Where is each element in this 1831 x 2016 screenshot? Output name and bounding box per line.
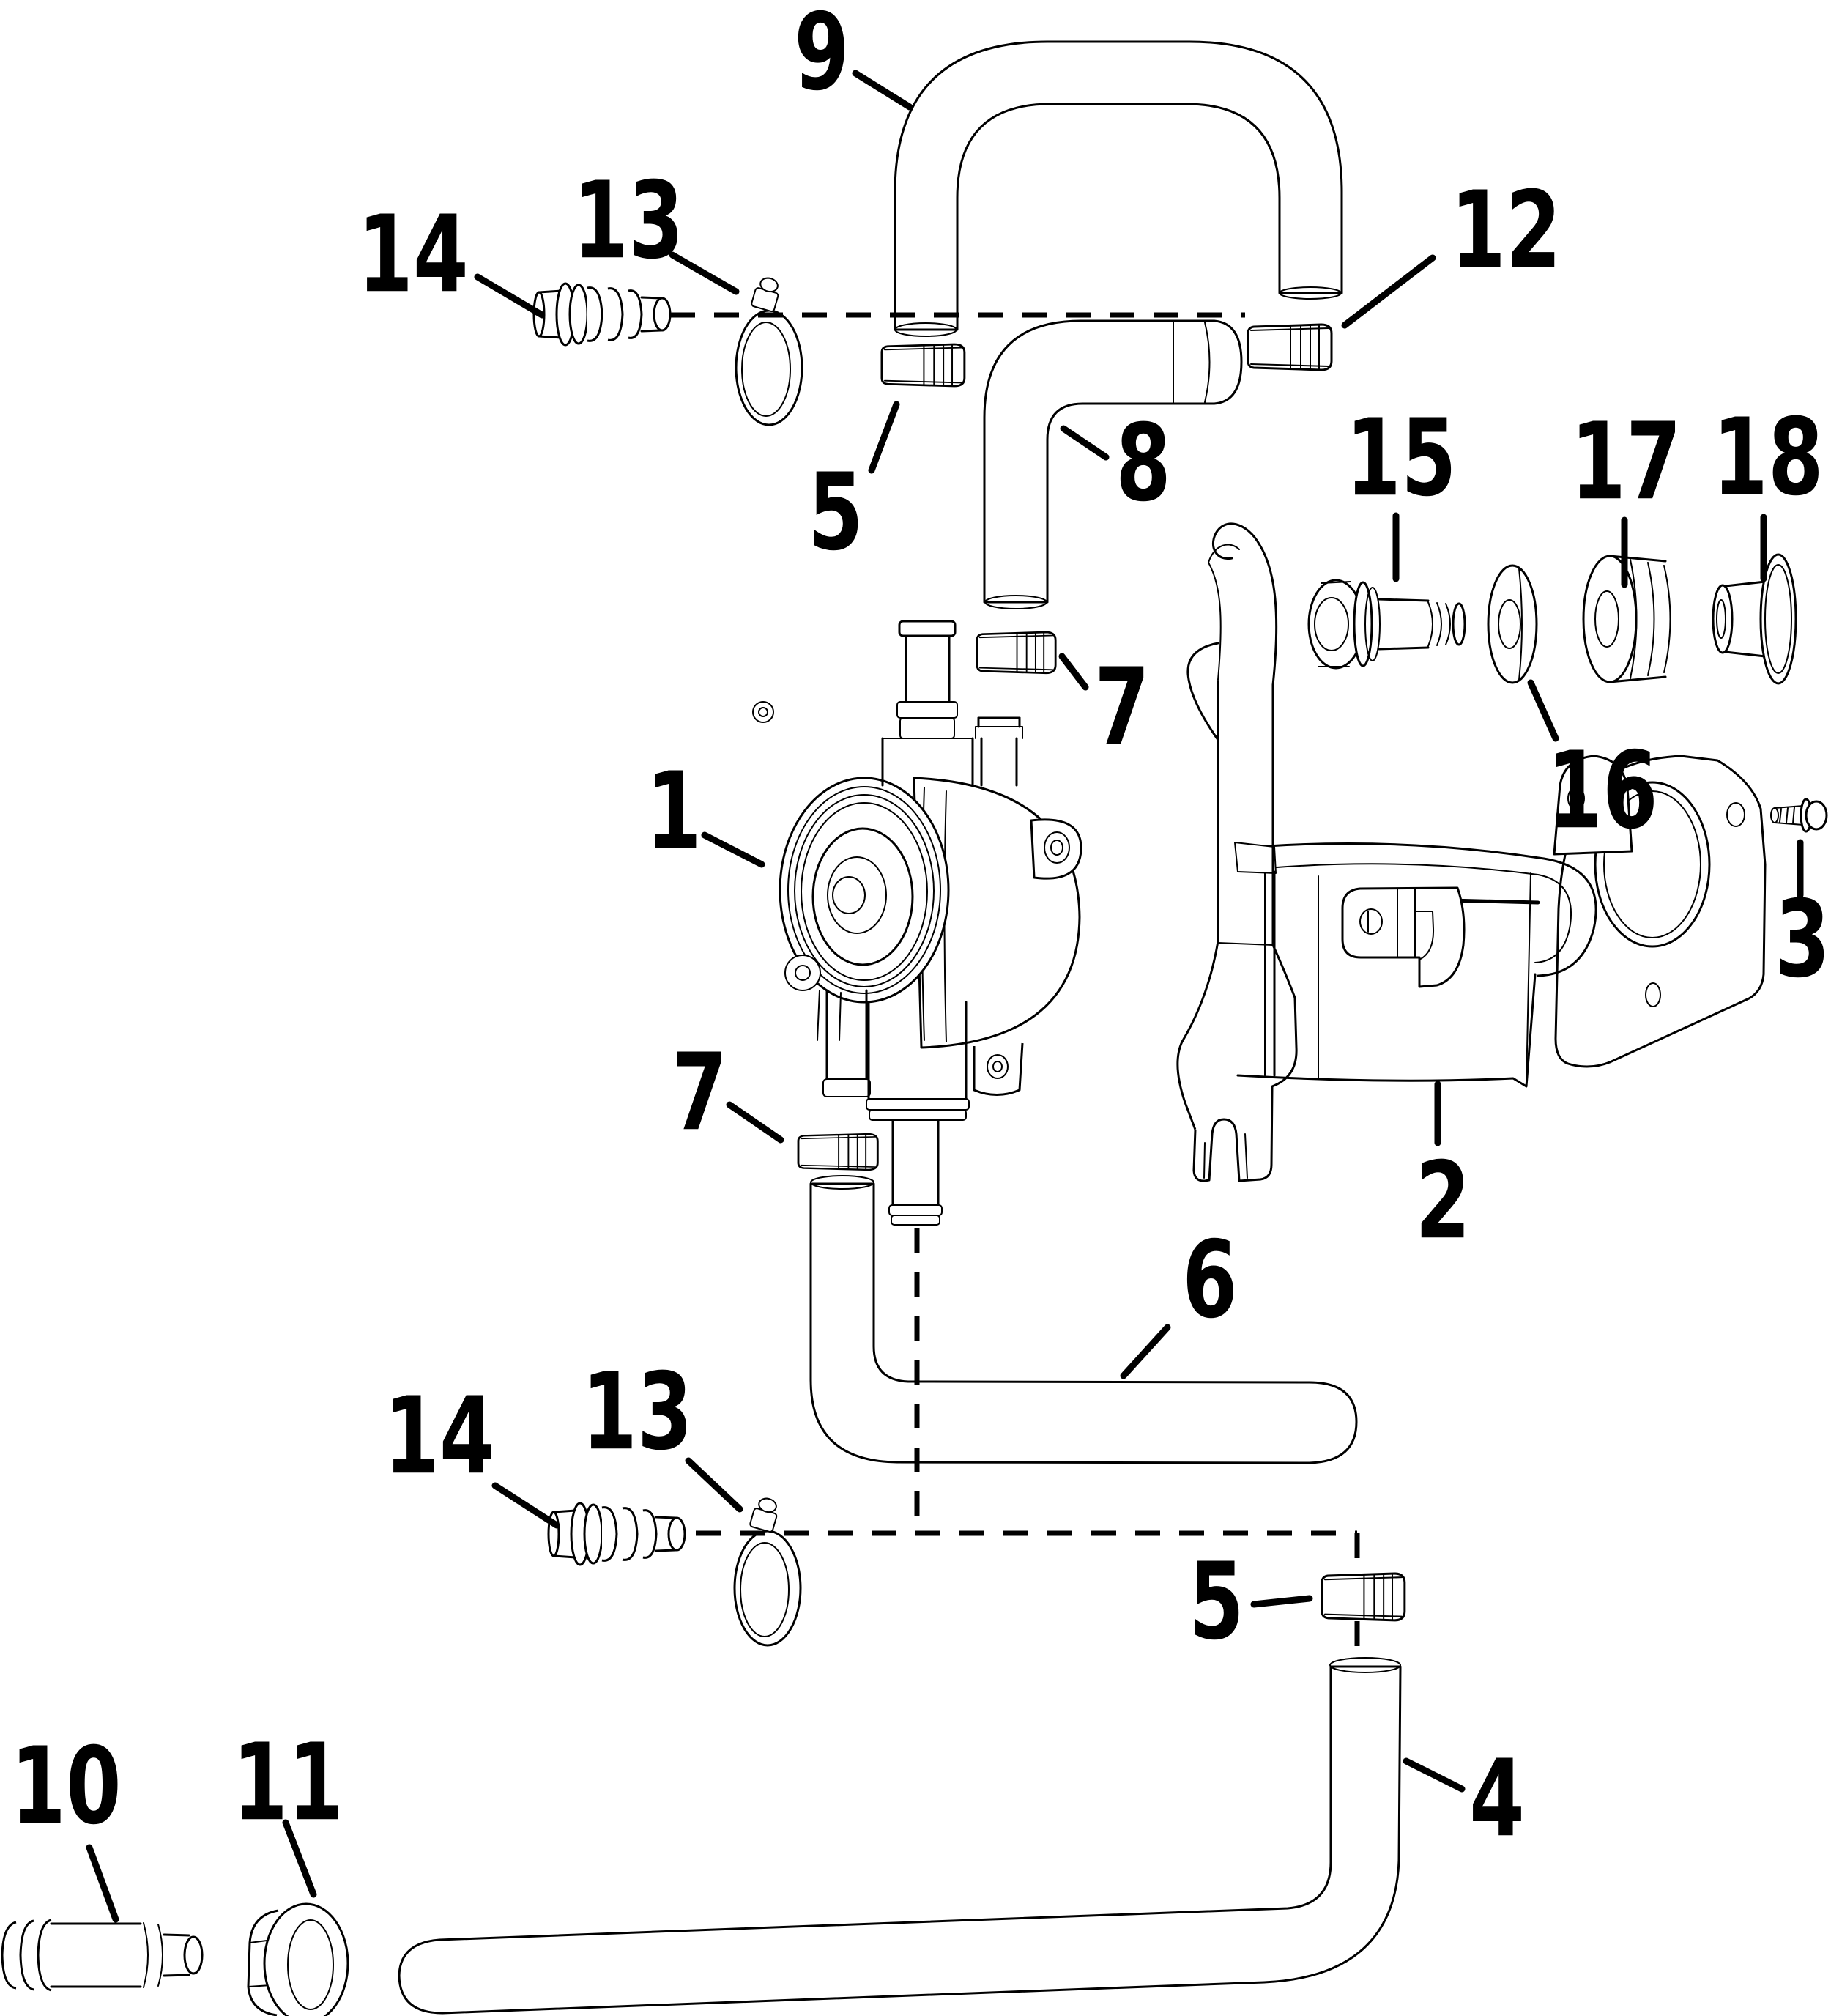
leader-8 (1063, 429, 1106, 457)
svg-text:7: 7 (1094, 646, 1150, 770)
callout-12: 12 (1450, 169, 1561, 293)
callout-15: 15 (1345, 397, 1456, 521)
svg-text:13: 13 (573, 160, 683, 283)
callout-11: 11 (232, 1722, 343, 1845)
parts-diagram-page: 9 14 13 12 5 8 15 17 18 16 7 1 3 2 7 6 1… (0, 0, 1831, 2016)
callout-5-upper: 5 (808, 451, 863, 575)
leader-6 (1124, 1327, 1167, 1376)
callout-6: 6 (1182, 1219, 1238, 1343)
long-hose-4 (399, 1658, 1400, 2013)
svg-text:5: 5 (808, 451, 863, 575)
hose-fitting-14-upper (534, 283, 670, 345)
svg-text:10: 10 (10, 1725, 121, 1849)
callout-18: 18 (1712, 396, 1823, 520)
band-clamp-5-lower (1322, 1574, 1405, 1620)
leader-14-lower (495, 1486, 557, 1525)
callout-8: 8 (1115, 402, 1171, 526)
leader-12 (1345, 258, 1433, 325)
callout-13-lower: 13 (582, 1351, 692, 1475)
svg-text:2: 2 (1415, 1140, 1471, 1264)
svg-text:3: 3 (1775, 878, 1830, 1002)
band-clamp-7-upper (977, 632, 1055, 673)
svg-text:17: 17 (1570, 401, 1681, 525)
leader-7-lower (729, 1105, 781, 1140)
svg-text:9: 9 (794, 0, 850, 114)
leader-1 (705, 835, 762, 864)
band-clamp-5-upper (882, 344, 965, 386)
bracket-2 (1178, 524, 1765, 1181)
leader-5-upper (872, 404, 896, 470)
u-hose-9 (895, 42, 1342, 336)
callout-16: 16 (1547, 730, 1657, 853)
wire-clamp-13-upper (736, 275, 802, 425)
band-clamp-12 (1248, 325, 1332, 370)
callout-3: 3 (1775, 878, 1830, 1002)
leader-4 (1406, 1761, 1462, 1789)
svg-text:13: 13 (582, 1351, 692, 1475)
svg-text:8: 8 (1115, 402, 1171, 526)
leader-5-lower (1254, 1598, 1310, 1604)
svg-text:5: 5 (1189, 1541, 1244, 1664)
wire-clamp-13-lower (735, 1496, 801, 1645)
callout-13-upper: 13 (573, 160, 683, 283)
flange-bolt-15 (1309, 580, 1465, 668)
svg-text:6: 6 (1182, 1219, 1238, 1343)
callout-17: 17 (1570, 401, 1681, 525)
hose-fitting-14-lower (549, 1503, 685, 1565)
callout-9: 9 (794, 0, 850, 114)
callout-14-lower: 14 (384, 1375, 494, 1499)
leader-14-upper (478, 277, 542, 315)
callout-10: 10 (10, 1725, 121, 1849)
leader-7-upper (1062, 656, 1085, 687)
svg-text:1: 1 (646, 750, 702, 874)
svg-text:14: 14 (384, 1375, 494, 1499)
barb-fitting-10 (2, 1920, 202, 1990)
svg-text:4: 4 (1469, 1738, 1525, 1861)
svg-text:18: 18 (1712, 396, 1823, 520)
exploded-parts-diagram: 9 14 13 12 5 8 15 17 18 16 7 1 3 2 7 6 1… (0, 0, 1831, 2016)
svg-text:14: 14 (357, 193, 468, 317)
screw-3 (1771, 799, 1827, 831)
leader-13-lower (688, 1461, 740, 1509)
callout-4: 4 (1469, 1738, 1525, 1861)
band-clamp-7-lower (798, 1134, 877, 1170)
callout-7-lower: 7 (672, 1031, 727, 1155)
callout-1: 1 (646, 750, 702, 874)
leader-10 (89, 1848, 116, 1919)
washer-16 (1488, 566, 1537, 683)
leader-9 (855, 73, 910, 107)
callout-14-upper: 14 (357, 193, 468, 317)
callout-7-upper: 7 (1094, 646, 1150, 770)
svg-text:7: 7 (672, 1031, 727, 1155)
svg-text:15: 15 (1345, 397, 1456, 521)
callout-2: 2 (1415, 1140, 1471, 1264)
svg-text:16: 16 (1547, 730, 1657, 853)
pump-1 (753, 621, 1081, 1225)
bushing-18 (1713, 555, 1796, 683)
elbow-hose-8 (984, 321, 1241, 609)
callout-5-lower: 5 (1189, 1541, 1244, 1664)
svg-text:11: 11 (232, 1722, 343, 1845)
hex-connector-11 (248, 1904, 348, 2016)
svg-text:12: 12 (1450, 169, 1561, 293)
